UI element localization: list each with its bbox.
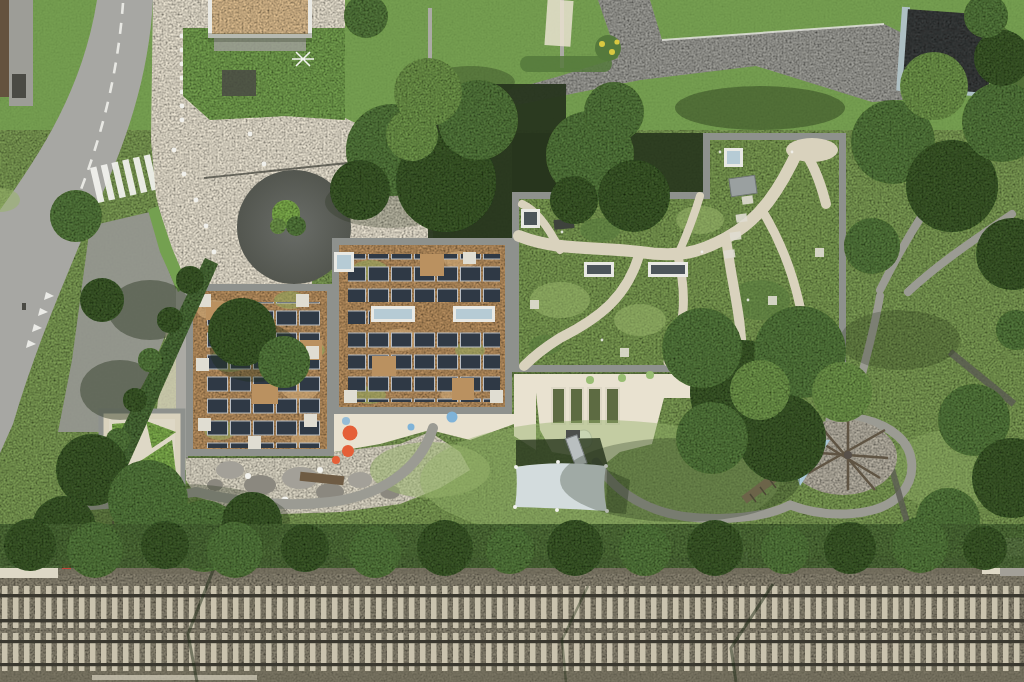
patio-furniture	[222, 70, 256, 96]
service-pad	[463, 252, 476, 264]
blue-dot	[342, 417, 350, 425]
green-dot	[618, 374, 626, 382]
rail-3	[0, 640, 1024, 643]
blue-dot	[447, 412, 458, 423]
solar-panel-array	[348, 330, 500, 402]
green-dot	[586, 376, 594, 384]
orange-dot	[343, 426, 358, 441]
scene-svg	[0, 0, 1024, 682]
garden-path	[544, 0, 573, 47]
rail-1	[0, 594, 1024, 597]
picnic-table	[12, 74, 26, 98]
tree-shadow-on-driveway	[675, 86, 845, 130]
grass-mound	[370, 442, 490, 498]
yellow-flower-bush	[595, 35, 621, 61]
solar-roof-center	[332, 238, 512, 414]
pedestrian	[22, 303, 26, 310]
orange-dot	[332, 456, 340, 464]
hedge-shrubs	[520, 56, 612, 72]
gravel-patch	[786, 138, 838, 162]
skylight	[334, 252, 354, 272]
blue-dot	[408, 424, 415, 431]
wood-fence	[0, 0, 9, 97]
roof-vent-box	[729, 175, 757, 196]
green-dot	[646, 371, 654, 379]
aerial-photo	[0, 0, 1024, 682]
rail-2	[0, 619, 1024, 622]
orange-dot	[342, 445, 354, 457]
rail-4	[0, 663, 1024, 666]
